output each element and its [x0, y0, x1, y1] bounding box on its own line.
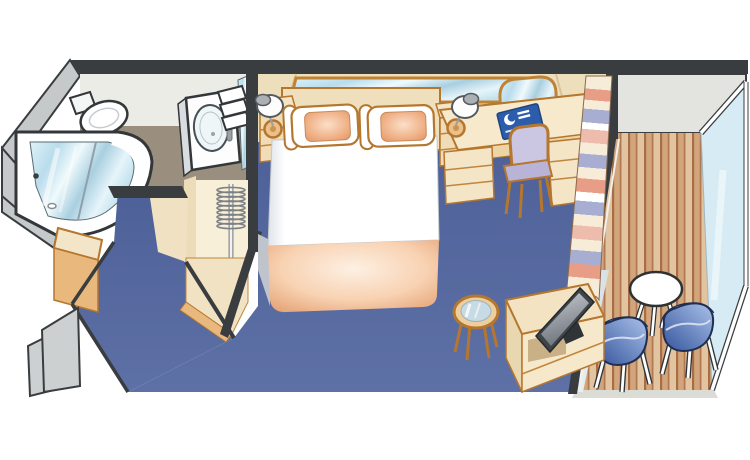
lamp-shade-top: [464, 94, 479, 105]
shower-drain: [48, 204, 56, 209]
back-wall-band: [70, 60, 748, 74]
chair-leg: [540, 180, 542, 212]
peach-blanket: [268, 240, 439, 312]
pillow-left: [283, 102, 359, 150]
lamp-ring-center: [453, 125, 459, 131]
deck-base-band: [572, 390, 718, 398]
pillow-inner: [381, 111, 427, 142]
pillow-inner: [304, 110, 350, 141]
entry-door-panel: [42, 308, 80, 392]
pillow-right: [359, 103, 434, 150]
lamp-shade-top: [256, 95, 271, 106]
bench-front: [54, 248, 98, 312]
desk-drawers-left: [444, 147, 494, 204]
table-top: [630, 272, 682, 306]
lamp-ring-center: [270, 126, 276, 132]
floorplan-canvas: [0, 0, 750, 460]
queen-bed: [268, 102, 439, 312]
shower-faucet: [33, 173, 39, 179]
towels: [218, 86, 250, 130]
table-glass: [461, 301, 491, 322]
bathroom-door-sill: [108, 186, 188, 198]
sink-drain: [211, 132, 215, 136]
duvet: [268, 136, 439, 246]
chair-leg: [520, 184, 522, 218]
